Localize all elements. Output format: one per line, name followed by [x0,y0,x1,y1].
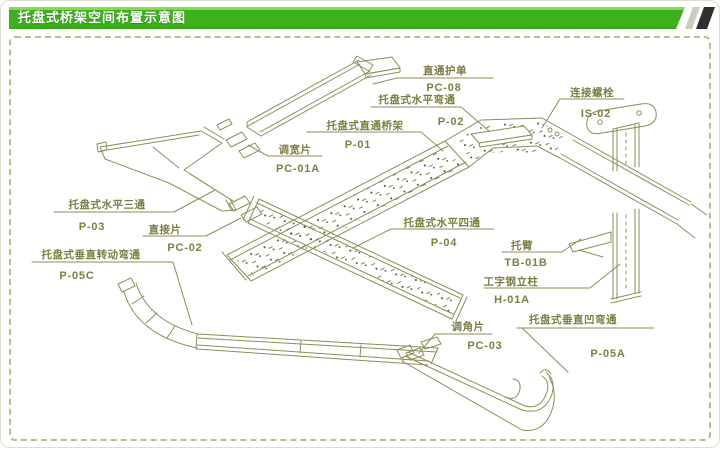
upper-straight-tray [247,56,373,136]
horizontal-tee [97,127,236,211]
vertical-rotating-bend [118,278,198,349]
panel-card: 托盘式桥架空间布置示意图 [0,0,720,448]
ladder-tray [197,334,438,365]
cable-tray-isometric-drawing [1,1,720,449]
bend-to-column-tray [560,136,707,238]
horizontal-bend [445,118,574,167]
vertical-concave-bend [397,345,554,431]
i-beam-column [587,104,657,303]
support-bracket [569,232,611,257]
